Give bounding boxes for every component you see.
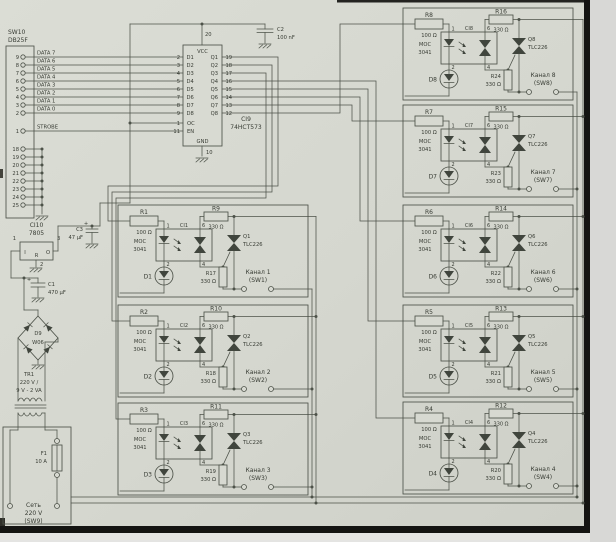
snubber-resistor-label: R22 (491, 271, 501, 277)
gate-resistor-label: R13 (495, 306, 507, 313)
input-resistor-value: 100 Ω (421, 230, 437, 236)
led-label: D8 (429, 77, 438, 84)
junction-dot (582, 412, 585, 415)
connector-pin (21, 179, 25, 183)
junction-dot (23, 277, 26, 280)
junction-dot (576, 485, 579, 488)
regulator-part: 7805 (29, 230, 44, 237)
gate-resistor-label: R12 (495, 403, 507, 410)
latch-output-pin: 17 (226, 71, 233, 77)
gate-resistor (489, 15, 513, 24)
triac-ref: Q8 (528, 37, 535, 43)
latch-input-label: D4 (187, 79, 195, 85)
mains-label-line1: Сеть (26, 502, 41, 509)
junction-dot (582, 215, 585, 218)
input-resistor-value: 100 Ω (136, 428, 152, 434)
triac-ref: Q7 (528, 134, 535, 140)
gate-resistor-label: R16 (495, 9, 507, 16)
snubber-resistor-label: R23 (491, 171, 501, 177)
snubber-resistor-value: 330 Ω (485, 82, 501, 88)
opto-part-line1: MOC (419, 239, 432, 245)
input-resistor-label: R2 (140, 309, 148, 316)
opto-pin6: 6 (487, 223, 490, 229)
c2-value: 100 nF (277, 35, 295, 41)
junction-dot (576, 288, 579, 291)
snubber-resistor-label: R18 (206, 371, 216, 377)
latch-vcc-label: VCC (197, 49, 208, 55)
output-terminal (269, 485, 274, 490)
latch-output-label: Q4 (211, 79, 219, 85)
connector-pin-number: 19 (12, 155, 19, 161)
input-resistor-value: 100 Ω (421, 330, 437, 336)
fuse-value: 10 A (35, 459, 47, 465)
snubber-resistor-label: R24 (491, 74, 502, 80)
latch-input-label: D6 (187, 95, 194, 101)
scan-border-right (584, 0, 590, 533)
scanned-schematic-page: 100 Ω 1 6 MOC 3041 330 Ω (0, 0, 616, 542)
gate-resistor (489, 409, 513, 418)
c1-value: 470 µF (48, 290, 66, 296)
output-terminal (269, 287, 274, 292)
snubber-resistor-label: R19 (206, 469, 216, 475)
opto-ref: CI7 (465, 123, 473, 129)
junction-dot (311, 388, 314, 391)
opto-part-line1: MOC (419, 339, 432, 345)
latch-output-pin: 13 (226, 103, 233, 109)
bridge-ref: D9 (34, 331, 41, 337)
led-label: D3 (144, 472, 153, 479)
latch-input-label: D8 (187, 111, 194, 117)
gate-resistor-value: 330 Ω (209, 423, 224, 429)
input-resistor (130, 414, 158, 424)
connector-pin (21, 187, 25, 191)
channel-switch-name: (SW5) (534, 377, 552, 384)
gate-resistor (204, 212, 228, 221)
latch-input-pin: 9 (177, 111, 180, 117)
latch-output-pin: 19 (226, 55, 233, 61)
scan-mark (0, 169, 3, 178)
opto-pin6: 6 (202, 223, 205, 229)
regulator-out-label: O (46, 250, 50, 256)
snubber-resistor-value: 330 Ω (485, 279, 501, 285)
gate-resistor-value: 330 Ω (494, 28, 509, 34)
junction-dot (518, 188, 521, 191)
junction-dot (233, 288, 236, 291)
connector-pin (21, 203, 25, 207)
opto-part-line2: 3041 (133, 247, 146, 253)
channel-name: Канал 4 (530, 466, 555, 473)
latch-input-pin: 6 (177, 87, 180, 93)
opto-part-line2: 3041 (133, 445, 146, 451)
input-resistor (415, 216, 443, 226)
connector-pin (21, 129, 25, 133)
opto-ref: CI4 (465, 420, 473, 426)
scan-margin-right (590, 0, 616, 542)
snubber-resistor-value: 330 Ω (200, 279, 216, 285)
opto-ref: CI1 (180, 223, 188, 229)
mains-terminal (8, 504, 13, 509)
channel-name: Канал 1 (245, 269, 270, 276)
channel-name: Канал 7 (530, 169, 555, 176)
gate-resistor-value: 330 Ω (494, 422, 509, 428)
connector-pin (21, 111, 25, 115)
output-terminal (242, 287, 247, 292)
connector-pin (21, 95, 25, 99)
output-terminal (554, 287, 559, 292)
connector-type: DB25F (8, 37, 28, 44)
junction-dot (315, 502, 318, 505)
connector-pin-number: 18 (12, 147, 19, 153)
scan-mark (0, 518, 5, 526)
gate-resistor (204, 312, 228, 321)
junction-dot (576, 188, 579, 191)
latch-output-pin: 14 (226, 95, 233, 101)
latch-input-pin: 7 (177, 95, 180, 101)
output-terminal (242, 387, 247, 392)
connector-pin-number: 20 (12, 163, 19, 169)
gate-resistor-label: R14 (495, 206, 507, 213)
junction-dot (311, 496, 314, 499)
output-terminal (269, 387, 274, 392)
connector-pin-number: 6 (16, 79, 19, 85)
opto-part-line2: 3041 (418, 444, 431, 450)
junction-dot (315, 413, 318, 416)
triac-part: TLC226 (527, 142, 548, 148)
connector-pin (21, 195, 25, 199)
led-label: D1 (144, 274, 153, 281)
regulator-pin-out: 3 (57, 236, 60, 242)
opto-pin6: 6 (487, 323, 490, 329)
transformer-secondary-v: 9 V - 2 VA (16, 388, 42, 394)
triac-ref: Q1 (243, 234, 250, 240)
connector-pin (21, 55, 25, 59)
led-label: D5 (429, 374, 438, 381)
connector-pin-number: 5 (16, 87, 19, 93)
gate-resistor (489, 312, 513, 321)
opto-part-line1: MOC (134, 339, 147, 345)
triac-ref: Q6 (528, 234, 535, 240)
latch-output-label: Q8 (211, 111, 218, 117)
snubber-resistor (219, 267, 227, 287)
junction-dot (582, 115, 585, 118)
channel-name: Канал 2 (245, 369, 270, 376)
input-resistor-label: R3 (140, 407, 148, 414)
snubber-resistor (504, 70, 512, 90)
output-terminal (527, 387, 532, 392)
junction-dot (518, 288, 521, 291)
input-resistor (415, 316, 443, 326)
channel-switch-name: (SW1) (249, 277, 267, 284)
input-resistor-label: R6 (425, 209, 433, 216)
junction-dot (518, 388, 521, 391)
latch-output-pin: 12 (226, 111, 233, 117)
opto-pin6: 6 (487, 123, 490, 129)
snubber-resistor-label: R17 (206, 271, 216, 277)
channel-switch-name: (SW8) (534, 80, 552, 87)
triac-ref: Q2 (243, 334, 250, 340)
channel-name: Канал 6 (530, 269, 555, 276)
junction-dot (233, 486, 236, 489)
channel-name: Канал 5 (530, 369, 555, 376)
triac-ref: Q5 (528, 334, 535, 340)
connector-pin (21, 103, 25, 107)
data-line-label: DATA 3 (37, 83, 55, 89)
opto-part-line1: MOC (134, 239, 147, 245)
latch-output-label: Q5 (211, 87, 218, 93)
input-resistor (415, 413, 443, 423)
c3-ref: C3 (76, 227, 83, 233)
junction-dot (518, 91, 521, 94)
snubber-resistor-value: 330 Ω (200, 477, 216, 483)
latch-input-pin: 2 (177, 55, 180, 61)
mains-label-line3: (SW9) (24, 518, 42, 525)
latch-oc-pin: 1 (177, 121, 180, 127)
input-resistor-label: R4 (425, 406, 433, 413)
opto-part-line2: 3041 (418, 50, 431, 56)
triac-part: TLC226 (527, 439, 548, 445)
junction-dot (311, 486, 314, 489)
opto-part-line1: MOC (419, 436, 432, 442)
snubber-resistor-value: 330 Ω (485, 379, 501, 385)
gate-resistor-label: R9 (212, 206, 220, 213)
channel-switch-name: (SW4) (534, 474, 552, 481)
opto-part-line2: 3041 (133, 347, 146, 353)
snubber-resistor (504, 464, 512, 484)
snubber-resistor (219, 367, 227, 387)
opto-part-line1: MOC (419, 139, 432, 145)
mains-label-line2: 220 V (25, 510, 43, 517)
triac-part: TLC226 (527, 45, 548, 51)
channel-switch-name: (SW2) (249, 377, 267, 384)
snubber-resistor (504, 267, 512, 287)
triac-ref: Q4 (528, 431, 536, 437)
data-line-label: DATA 1 (37, 99, 55, 105)
latch-ref: CI9 (241, 116, 251, 123)
led-label: D7 (429, 174, 438, 181)
gate-resistor-value: 330 Ω (494, 225, 509, 231)
mains-terminal (55, 504, 60, 509)
regulator-ref: CI10 (30, 222, 44, 229)
snubber-resistor (504, 367, 512, 387)
latch-oc-label: OC (187, 121, 195, 127)
junction-dot (315, 315, 318, 318)
gate-resistor-label: R10 (210, 306, 222, 313)
triac-part: TLC226 (527, 342, 548, 348)
triac-ref: Q3 (243, 432, 250, 438)
latch-input-pin: 5 (177, 79, 180, 85)
junction-dot (576, 496, 579, 499)
latch-gnd-pin: 10 (206, 150, 213, 156)
latch-output-pin: 15 (226, 87, 233, 93)
junction-dot (129, 122, 132, 125)
output-terminal (527, 484, 532, 489)
led-label: D4 (429, 471, 438, 478)
snubber-resistor (504, 167, 512, 187)
gate-resistor-value: 330 Ω (494, 125, 509, 131)
connector-pin-number: 1 (16, 129, 19, 135)
triac-part: TLC226 (242, 342, 263, 348)
data-line-label: DATA 5 (37, 67, 55, 73)
connector-pin-number: 21 (12, 171, 19, 177)
snubber-resistor-value: 330 Ω (485, 179, 501, 185)
latch-output-label: Q1 (211, 55, 218, 61)
latch-output-pin: 16 (226, 79, 233, 85)
junction-dot (233, 388, 236, 391)
opto-part-line2: 3041 (418, 147, 431, 153)
connector-pin (21, 71, 25, 75)
input-resistor-value: 100 Ω (136, 230, 152, 236)
gate-resistor (489, 112, 513, 121)
connector-pin-number: 2 (16, 111, 19, 117)
output-terminal (554, 90, 559, 95)
c1-ref: C1 (48, 282, 55, 288)
regulator-pin-com: 2 (40, 262, 43, 268)
channel-name: Канал 8 (530, 72, 555, 79)
latch-en-label: EN (187, 129, 194, 135)
input-resistor (415, 19, 443, 29)
snubber-resistor-label: R21 (491, 371, 501, 377)
connector-pin-number: 24 (12, 195, 19, 201)
latch-gnd-label: GND (197, 139, 209, 145)
data-line-label: DATA 4 (37, 75, 56, 81)
connector-pin (21, 171, 25, 175)
data-line-label: DATA 0 (37, 107, 55, 113)
opto-pin6: 6 (202, 421, 205, 427)
led-label: D6 (429, 274, 438, 281)
junction-dot (201, 23, 204, 26)
junction-dot (518, 485, 521, 488)
fuse-holder-terminal (55, 439, 60, 444)
opto-pin6: 6 (202, 323, 205, 329)
connector-pin (21, 79, 25, 83)
opto-ref: CI5 (465, 323, 473, 329)
opto-pin6: 6 (487, 420, 490, 426)
junction-dot (582, 315, 585, 318)
connector-pin-number: 8 (16, 63, 19, 69)
fuse-holder-terminal (55, 473, 60, 478)
channel-name: Канал 3 (245, 467, 270, 474)
channel-switch-name: (SW6) (534, 277, 552, 284)
scan-border-bottom (0, 526, 590, 533)
regulator-pin-in: 1 (13, 236, 16, 242)
latch-input-label: D2 (187, 63, 194, 69)
latch-output-pin: 18 (226, 63, 233, 69)
channel-switch-name: (SW3) (249, 475, 267, 482)
latch-input-label: D1 (187, 55, 194, 61)
output-terminal (554, 187, 559, 192)
opto-ref: CI3 (180, 421, 188, 427)
input-resistor (130, 316, 158, 326)
opto-pin6: 6 (487, 26, 490, 32)
input-resistor-label: R7 (425, 109, 433, 116)
gate-resistor-value: 330 Ω (494, 325, 509, 331)
snubber-resistor-value: 330 Ω (485, 476, 501, 482)
transformer-ref: TR1 (23, 372, 34, 378)
gate-resistor (204, 410, 228, 419)
connector-name: SW10 (8, 29, 26, 36)
latch-output-label: Q7 (211, 103, 218, 109)
latch-input-label: D5 (187, 87, 194, 93)
data-line-label: DATA 2 (37, 91, 55, 97)
gate-resistor-value: 330 Ω (209, 325, 224, 331)
c3-value: 47 µF (68, 235, 83, 241)
gate-resistor (489, 212, 513, 221)
opto-part-line2: 3041 (418, 247, 431, 253)
input-resistor (130, 216, 158, 226)
input-resistor-label: R5 (425, 309, 433, 316)
triac-part: TLC226 (242, 242, 263, 248)
connector-pin (21, 87, 25, 91)
channel-switch-name: (SW7) (534, 177, 552, 184)
gate-resistor-label: R11 (210, 404, 222, 411)
gate-resistor-value: 330 Ω (209, 225, 224, 231)
triac-part: TLC226 (527, 242, 548, 248)
snubber-resistor-value: 330 Ω (200, 379, 216, 385)
connector-pin-number: 9 (16, 55, 19, 61)
c2-ref: C2 (277, 27, 284, 33)
latch-input-label: D3 (187, 71, 194, 77)
triac-part: TLC226 (242, 440, 263, 446)
regulator-com-label: R (35, 253, 39, 259)
input-resistor-value: 100 Ω (421, 130, 437, 136)
latch-vcc-pin: 20 (205, 32, 212, 38)
latch-input-pin: 8 (177, 103, 180, 109)
latch-output-label: Q6 (211, 95, 218, 101)
connector-pin-number: 25 (12, 203, 19, 209)
input-resistor-value: 100 Ω (421, 427, 437, 433)
input-resistor (415, 116, 443, 126)
led-label: D2 (144, 374, 153, 381)
output-terminal (527, 187, 532, 192)
snubber-resistor-label: R20 (491, 468, 501, 474)
snubber-resistor (219, 465, 227, 485)
scan-border-top (337, 0, 584, 3)
connector-pin-number: 22 (12, 179, 19, 185)
bridge-part: W06 (32, 340, 44, 346)
latch-en-pin: 11 (173, 129, 180, 135)
output-terminal (554, 387, 559, 392)
fuse-ref: F1 (41, 451, 47, 457)
connector-pin (21, 63, 25, 67)
data-line-label: DATA 7 (37, 51, 55, 57)
opto-ref: CI2 (180, 323, 188, 329)
connector-pin-number: 7 (16, 71, 19, 77)
connector-pin (21, 155, 25, 159)
transformer-primary-v: 220 V / (20, 380, 39, 386)
junction-dot (91, 225, 94, 228)
connector-pin (21, 147, 25, 151)
data-line-label: DATA 6 (37, 59, 55, 65)
gate-resistor-label: R15 (495, 106, 507, 113)
input-resistor-value: 100 Ω (421, 33, 437, 39)
latch-part: 74HCT573 (230, 124, 262, 131)
output-terminal (554, 484, 559, 489)
latch-input-label: D7 (187, 103, 194, 109)
output-terminal (242, 485, 247, 490)
opto-part-line1: MOC (134, 437, 147, 443)
opto-part-line2: 3041 (418, 347, 431, 353)
connector-pin-number: 3 (16, 103, 19, 109)
latch-input-pin: 3 (177, 63, 180, 69)
latch-output-label: Q3 (211, 71, 218, 77)
junction-dot (582, 502, 585, 505)
opto-part-line1: MOC (419, 42, 432, 48)
input-resistor-label: R1 (140, 209, 148, 216)
opto-ref: CI8 (465, 26, 473, 32)
junction-dot (576, 388, 579, 391)
opto-ref: CI6 (465, 223, 473, 229)
strobe-label: STROBE (37, 125, 58, 131)
